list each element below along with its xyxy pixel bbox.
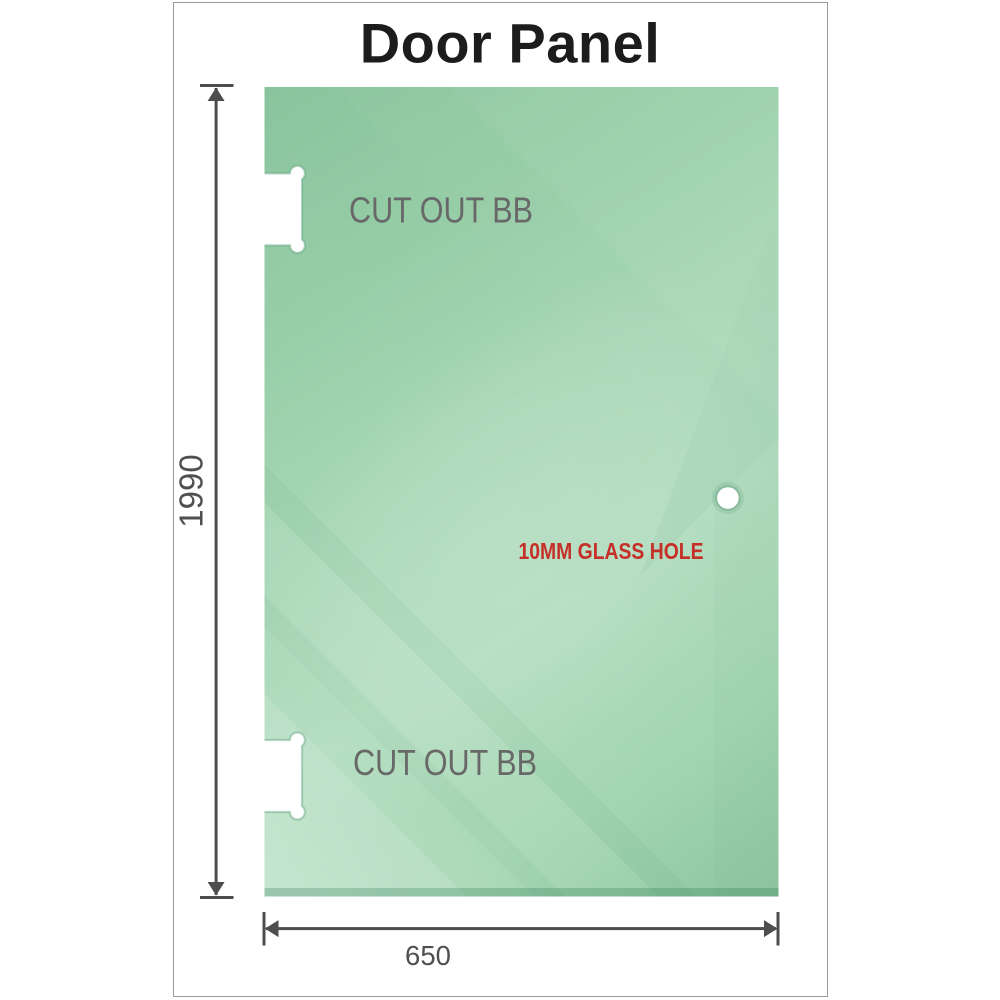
svg-text:10MM GLASS HOLE: 10MM GLASS HOLE bbox=[519, 538, 704, 564]
svg-text:650: 650 bbox=[405, 940, 451, 971]
svg-text:CUT OUT BB: CUT OUT BB bbox=[349, 190, 533, 231]
svg-text:Door Panel: Door Panel bbox=[360, 12, 661, 75]
svg-text:CUT OUT BB: CUT OUT BB bbox=[353, 742, 537, 783]
svg-text:1990: 1990 bbox=[173, 454, 210, 527]
